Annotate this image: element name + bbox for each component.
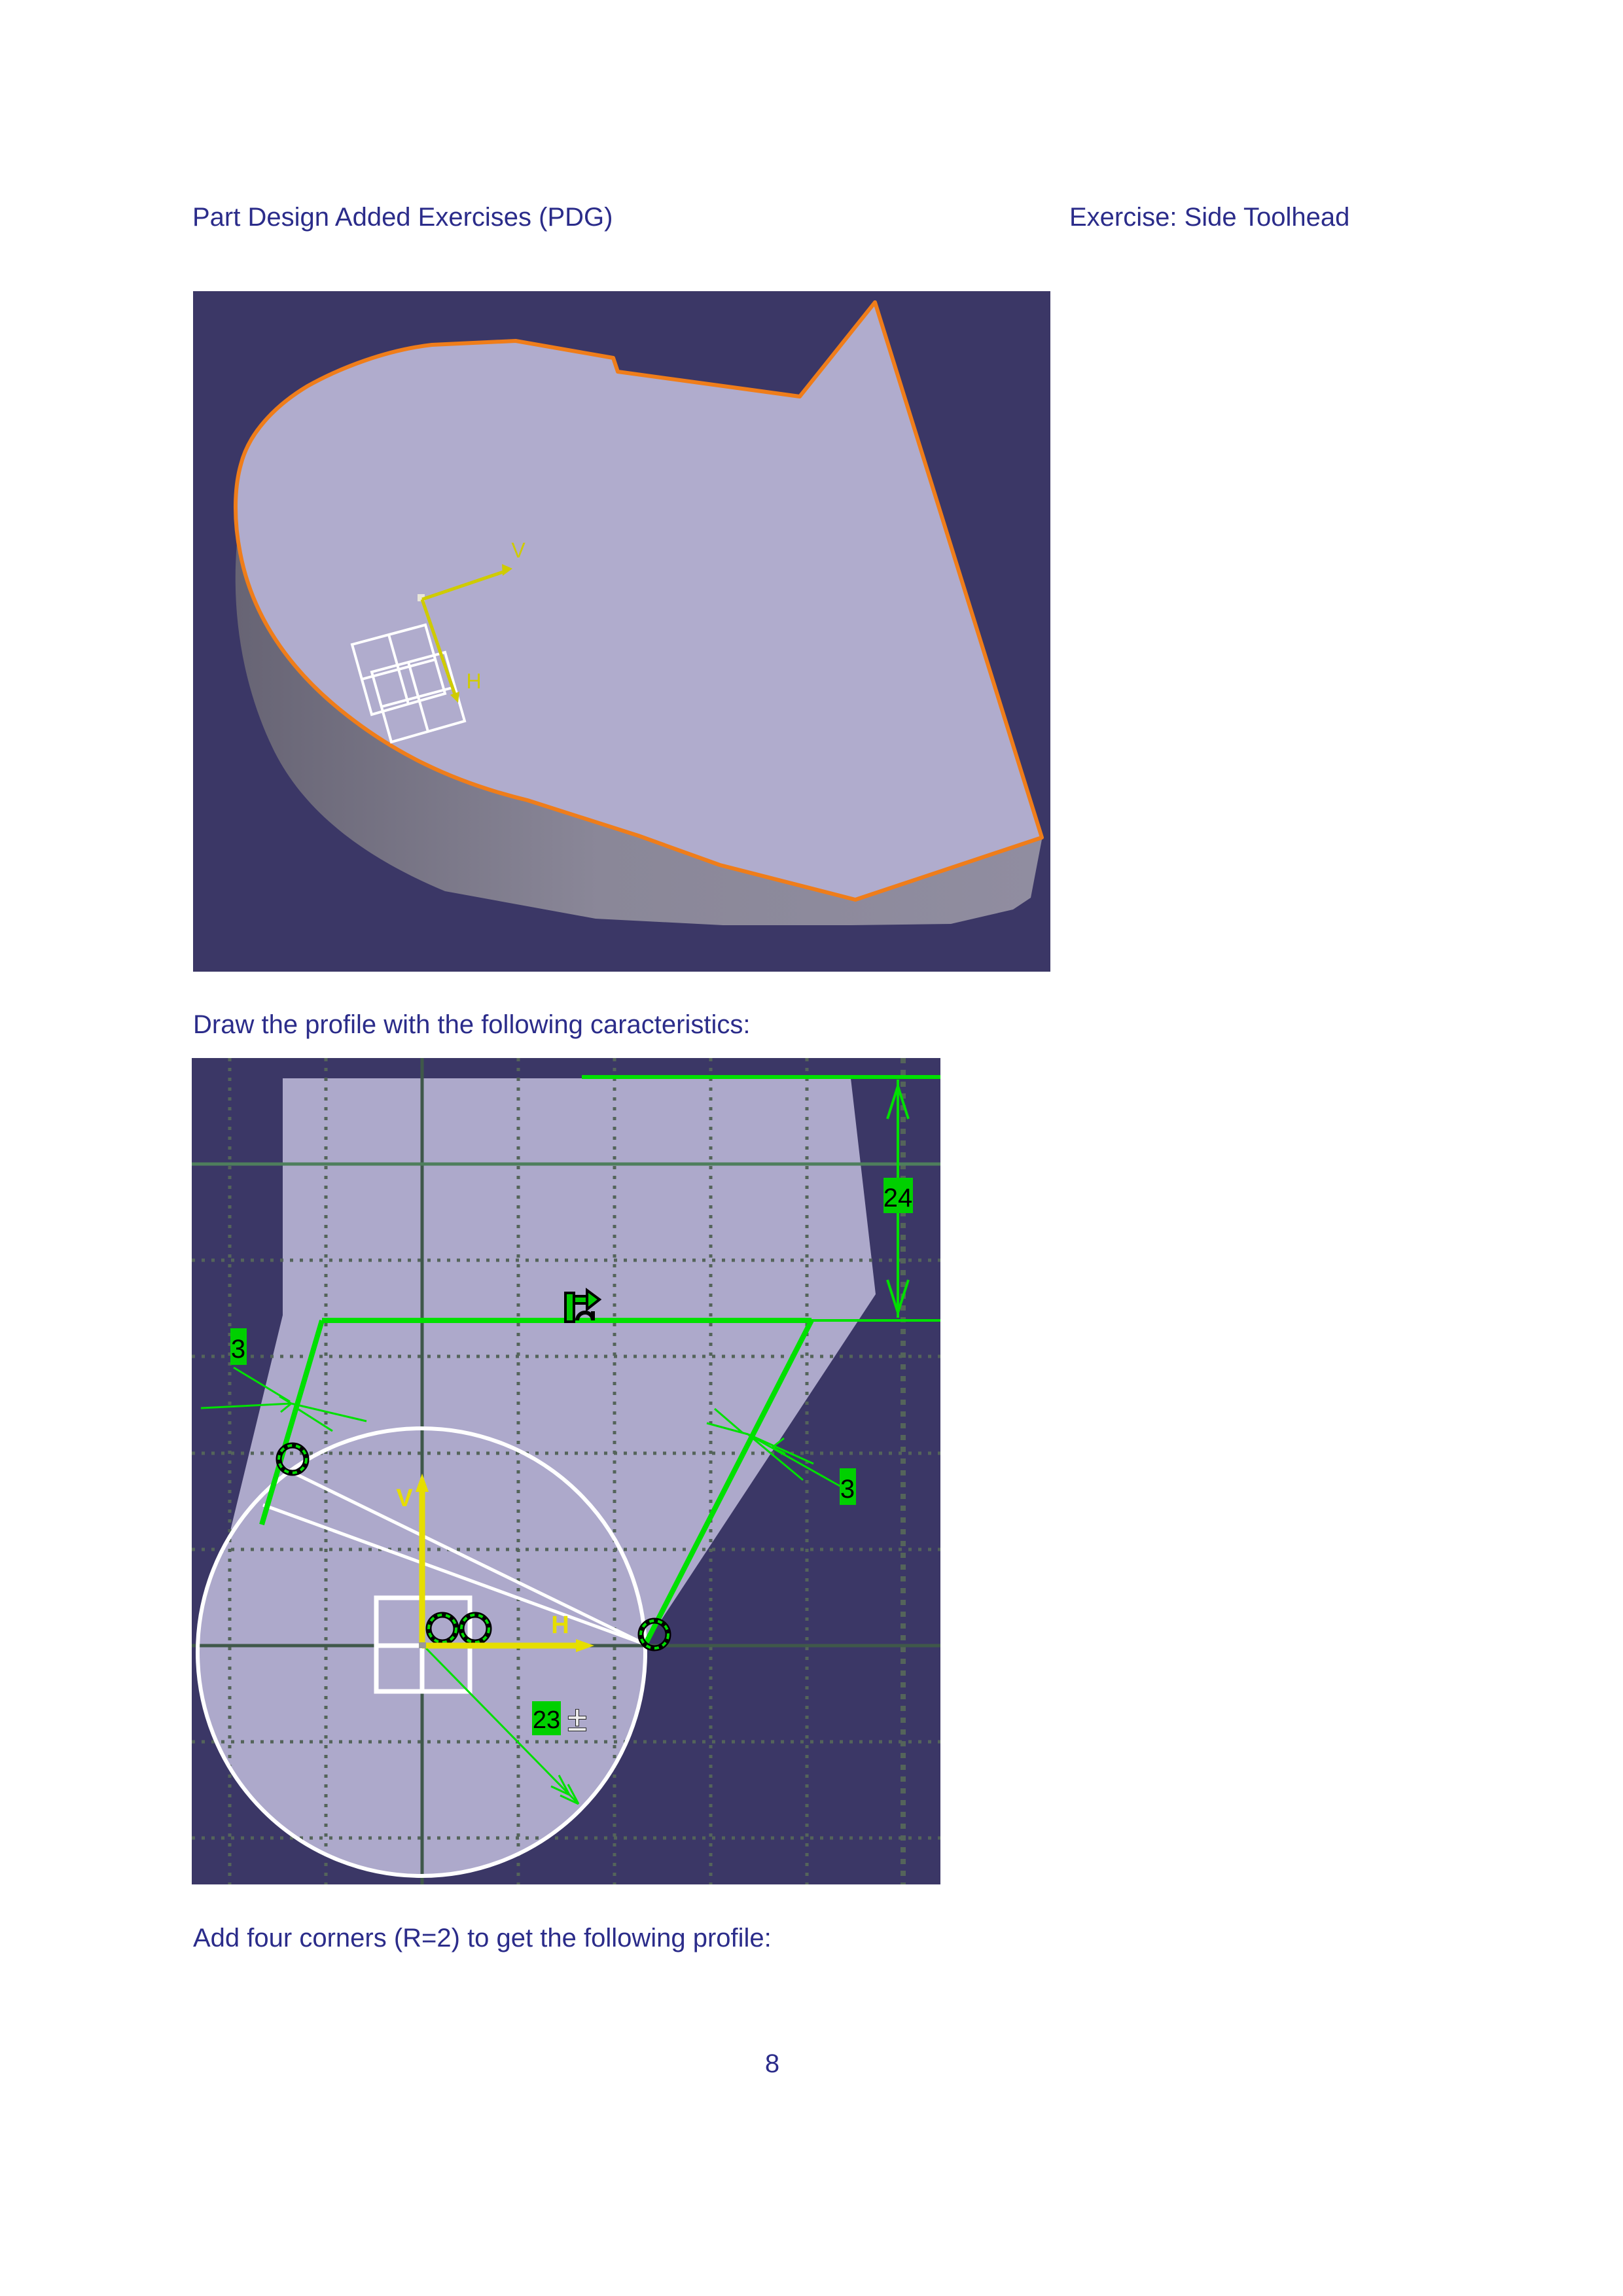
h-axis-label-sketch: H	[551, 1612, 569, 1639]
h-axis-label-3d: H	[466, 669, 481, 693]
figure-sketch-profile: 24 3 3	[192, 1058, 940, 1884]
dim-24-value: 24	[883, 1184, 913, 1212]
page-number: 8	[753, 2049, 792, 2078]
dim-3-right-value: 3	[840, 1475, 855, 1504]
figure-3d-part-view: V H	[193, 291, 1050, 972]
document-page: Part Design Added Exercises (PDG) Exerci…	[0, 0, 1623, 2296]
v-axis-label-3d: V	[511, 539, 526, 562]
caption-add-corners: Add four corners (R=2) to get the follow…	[193, 1924, 772, 1952]
sketch-canvas: 24 3 3	[192, 1058, 940, 1884]
3d-part-canvas: V H	[193, 291, 1050, 972]
tolerance-plus-minus-symbol: ±	[567, 1699, 587, 1739]
dim-3-left-value: 3	[231, 1335, 245, 1364]
caption-draw-profile: Draw the profile with the following cara…	[193, 1010, 750, 1039]
header-left: Part Design Added Exercises (PDG)	[192, 203, 613, 232]
sketch-origin-point	[419, 1642, 426, 1648]
dim-23-value: 23	[533, 1706, 560, 1734]
v-axis-label-sketch: V	[396, 1485, 413, 1512]
header-right: Exercise: Side Toolhead	[1069, 203, 1349, 232]
